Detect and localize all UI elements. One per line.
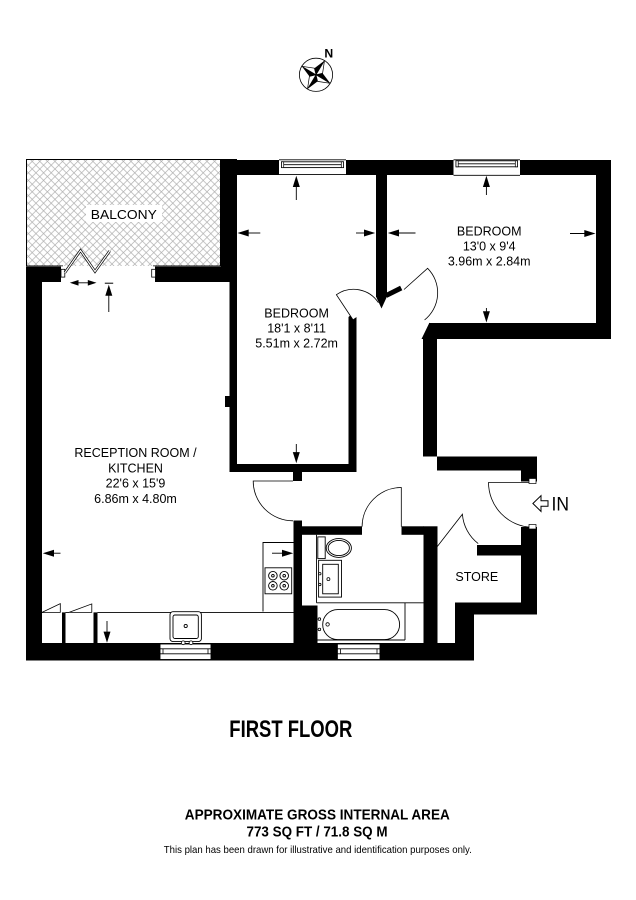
svg-text:6.86m x 4.80m: 6.86m x 4.80m — [94, 492, 177, 506]
svg-text:3.96m x 2.84m: 3.96m x 2.84m — [448, 254, 531, 268]
svg-text:BALCONY: BALCONY — [91, 207, 157, 222]
svg-text:IN: IN — [552, 494, 570, 516]
svg-text:18'1 x 8'11: 18'1 x 8'11 — [267, 321, 326, 335]
svg-text:773 SQ FT / 71.8 SQ M: 773 SQ FT / 71.8 SQ M — [247, 824, 388, 841]
svg-text:22'6 x 15'9: 22'6 x 15'9 — [106, 477, 166, 491]
svg-text:13'0 x 9'4: 13'0 x 9'4 — [463, 239, 516, 253]
svg-text:FIRST FLOOR: FIRST FLOOR — [229, 716, 352, 743]
svg-text:This plan has been drawn for i: This plan has been drawn for illustrativ… — [164, 844, 472, 856]
svg-text:STORE: STORE — [455, 570, 498, 584]
svg-text:APPROXIMATE GROSS INTERNAL ARE: APPROXIMATE GROSS INTERNAL AREA — [185, 807, 450, 824]
svg-text:BEDROOM: BEDROOM — [457, 224, 522, 238]
svg-text:N: N — [324, 47, 333, 61]
svg-text:BEDROOM: BEDROOM — [264, 306, 329, 320]
svg-text:KITCHEN: KITCHEN — [108, 461, 163, 475]
svg-text:5.51m x 2.72m: 5.51m x 2.72m — [255, 337, 338, 351]
svg-text:RECEPTION ROOM /: RECEPTION ROOM / — [74, 446, 197, 460]
